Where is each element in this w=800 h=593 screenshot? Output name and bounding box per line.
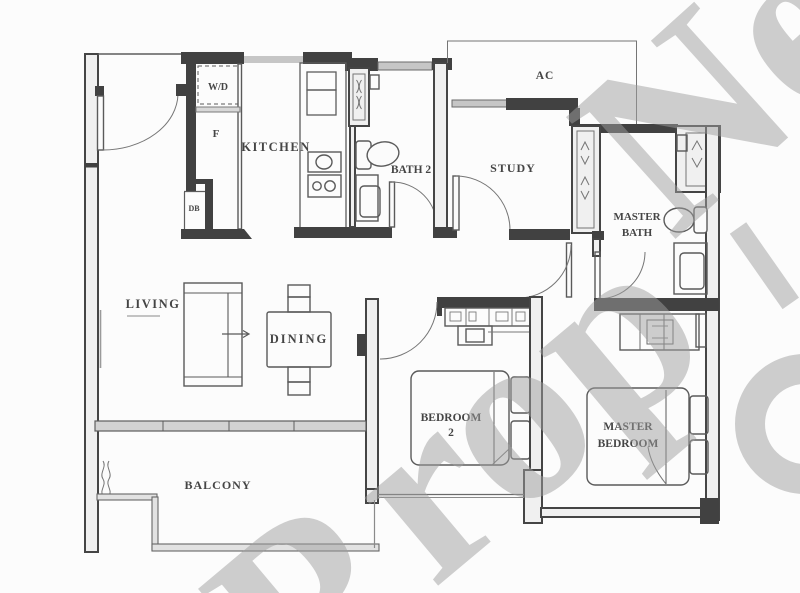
svg-text:DINING: DINING — [270, 332, 329, 346]
svg-text:LIVING: LIVING — [126, 297, 181, 311]
svg-text:BATH: BATH — [622, 227, 653, 239]
svg-text:DB: DB — [188, 204, 200, 213]
svg-text:BATH 2: BATH 2 — [391, 164, 432, 176]
svg-text:F: F — [213, 128, 220, 140]
svg-text:KITCHEN: KITCHEN — [241, 140, 311, 154]
svg-text:W/D: W/D — [208, 82, 228, 93]
svg-text:STUDY: STUDY — [490, 161, 536, 175]
